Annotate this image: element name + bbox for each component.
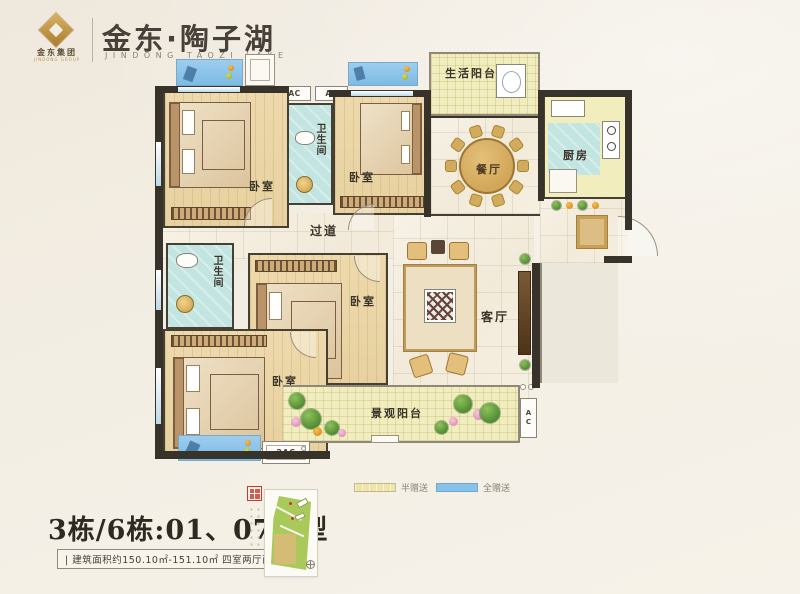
ac-label: AC [288, 89, 300, 98]
balcony-step [371, 435, 399, 443]
armchair [408, 353, 433, 378]
legend-half-gift: 半赠送 [354, 481, 428, 494]
room-life-balcony: 生活阳台 [429, 52, 540, 116]
gift-ac-shelf-left [176, 59, 243, 86]
window [156, 142, 161, 186]
plant-dot [402, 74, 408, 80]
area-info: | 建筑面积约150.10㎡-151.10㎡ 四室两厅两卫 | [57, 549, 297, 569]
room-label-bath-2: 卫生间 [209, 255, 224, 288]
wardrobe [340, 196, 424, 208]
legend-full-gift: 全赠送 [436, 481, 510, 494]
adjacent-area [540, 263, 618, 383]
room-kitchen: 厨房 [543, 93, 628, 199]
window [156, 270, 161, 310]
window [351, 91, 413, 96]
room-bath-1: 卫生间 [287, 103, 333, 205]
ac-label: AC [525, 409, 533, 427]
floor-plan: AC AC 生活阳台 餐厅 厨房 [148, 46, 700, 470]
site-map-marker [291, 517, 294, 520]
armchair [449, 242, 469, 260]
legend-label-half-gift: 半赠送 [401, 481, 428, 494]
room-view-balcony: 景观阳台 [283, 385, 520, 443]
wardrobe [171, 335, 267, 347]
red-seal-icon [247, 486, 262, 501]
gift-ac-shelf-right [348, 62, 418, 86]
room-label-bedroom-2: 卧室 [349, 169, 375, 185]
legend-label-full-gift: 全赠送 [483, 481, 510, 494]
entry-area [540, 199, 628, 263]
wall [538, 97, 544, 201]
plant-dot [226, 73, 232, 79]
room-label-corridor: 过道 [310, 222, 338, 239]
side-table [431, 240, 445, 254]
plant-dot [228, 65, 234, 71]
header-divider [92, 18, 93, 62]
legend-swatch-half-gift [354, 483, 396, 492]
living-rug [403, 264, 477, 352]
site-map-marker [289, 502, 292, 505]
legend-swatch-full-gift [436, 483, 478, 492]
wall [532, 263, 540, 388]
washing-machine-icon [496, 64, 526, 98]
window [178, 87, 240, 92]
jindong-logo-diamond-icon [39, 13, 73, 47]
room-label-bath-1: 卫生间 [312, 123, 327, 156]
logo-group-name-en: JINDONG GROUP [28, 57, 86, 62]
bay-window [245, 54, 275, 86]
room-label-bedroom-1: 卧室 [249, 178, 275, 194]
vanity-icon [296, 176, 313, 193]
room-dining: 餐厅 [429, 116, 543, 216]
wall [625, 90, 632, 230]
entrance-door-arc [618, 216, 658, 256]
ac-unit-icon [353, 66, 365, 81]
toilet-icon [176, 253, 198, 268]
fridge-icon [549, 169, 577, 193]
compass-icon [306, 560, 315, 569]
site-map-block [274, 534, 296, 564]
ac-unit-icon [183, 66, 197, 83]
stove-icon [602, 121, 620, 159]
room-label-life-balcony: 生活阳台 [445, 66, 469, 81]
plant-dot [404, 66, 410, 72]
tv-cabinet [518, 271, 531, 355]
room-label-bedroom-3: 卧室 [350, 293, 376, 309]
entry-rug [576, 215, 608, 249]
ac-platform-right: AC [520, 398, 537, 438]
wall [155, 451, 330, 459]
dining-chairs [459, 138, 515, 194]
wardrobe [171, 207, 251, 220]
room-label-living: 客厅 [481, 308, 509, 325]
room-label-view-balcony: 景观阳台 [371, 405, 423, 421]
wardrobe [255, 260, 337, 272]
armchair [445, 352, 469, 376]
window [156, 368, 161, 424]
armchair [407, 242, 427, 260]
room-living: 客厅 [393, 216, 534, 401]
wall [424, 97, 431, 217]
vanity-icon [176, 295, 194, 313]
wall [538, 90, 632, 97]
wall [604, 256, 632, 263]
room-bedroom-2: 卧室 [333, 93, 428, 215]
room-bath-2: 卫生间 [166, 243, 234, 329]
room-label-kitchen: 厨房 [563, 147, 589, 163]
kitchen-sink-icon [551, 100, 585, 117]
